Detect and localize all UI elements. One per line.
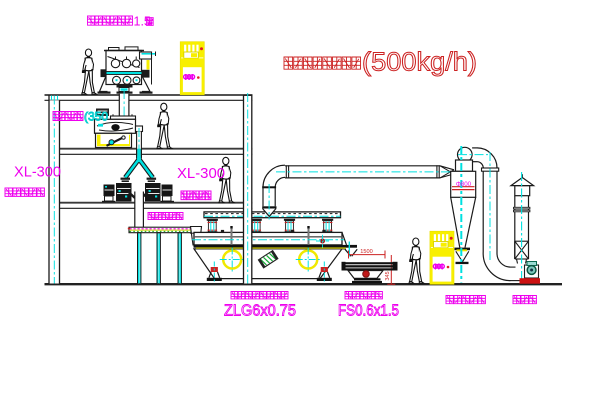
svg-text:FS0.6x1.5: FS0.6x1.5: [338, 303, 399, 320]
svg-text:ZLG6x0.75: ZLG6x0.75: [224, 303, 296, 320]
svg-text:345: 345: [385, 271, 391, 280]
svg-text:(350: (350: [84, 110, 108, 124]
svg-text:1500: 1500: [360, 249, 372, 255]
svg-text:XL-300: XL-300: [177, 165, 225, 182]
svg-text:(500kg/h): (500kg/h): [362, 49, 477, 77]
svg-text:XL-300: XL-300: [14, 164, 61, 181]
svg-text:Φ800: Φ800: [456, 181, 472, 188]
